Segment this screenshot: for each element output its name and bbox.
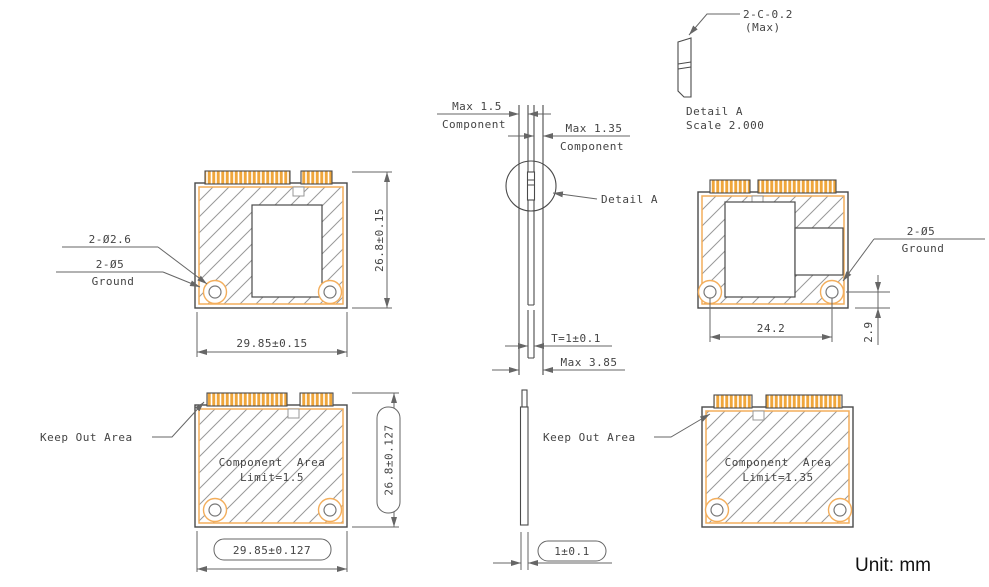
callout-keep-out-right: Keep Out Area (543, 414, 710, 444)
dim-label: 2.9 (862, 321, 875, 342)
extension-lines (197, 312, 347, 357)
callout-label: 2-Ø2.6 (89, 233, 132, 246)
connector-tab-lines (528, 310, 534, 358)
edge-connector-fingers-left (207, 393, 287, 406)
component-limit-text: Limit=1.5 (240, 471, 304, 484)
mounting-hole (209, 286, 221, 298)
component-outline-large (725, 202, 795, 297)
dim-max-total-thickness: Max 3.85 (492, 356, 625, 370)
edge-connector-fingers-left (710, 180, 750, 193)
chamfer-max-label: (Max) (745, 21, 781, 34)
dim-label: Component (442, 118, 506, 131)
callout-label: 2-Ø5 (907, 225, 936, 238)
callout-label: Detail A (601, 193, 658, 206)
component-envelope-lines (519, 105, 543, 375)
key-notch (753, 411, 764, 420)
edge-connector-fingers-right (758, 180, 836, 193)
component-outline-small (795, 228, 843, 275)
mounting-hole (324, 504, 336, 516)
component-area-text: Component Area (219, 456, 326, 469)
callout-keep-out-left: Keep Out Area (40, 402, 204, 444)
dim-label: 24.2 (757, 322, 786, 335)
dim-label: T=1±0.1 (551, 332, 601, 345)
detail-edge-piece (528, 172, 535, 200)
dim-label: 1±0.1 (554, 545, 590, 558)
edge-connector-fingers-left (714, 395, 752, 408)
connector-tab (522, 390, 527, 407)
dim-label: Max 1.5 (452, 100, 502, 113)
detail-scale: Scale 2.000 (686, 119, 764, 132)
bottom-right-card-view: Component Area Limit=1.35 (702, 395, 853, 527)
callout-label: Keep Out Area (543, 431, 636, 444)
mounting-hole (324, 286, 336, 298)
top-left-card-view (195, 171, 347, 308)
mounting-hole (711, 504, 723, 516)
callout-label: Keep Out Area (40, 431, 133, 444)
detail-title: Detail A (686, 105, 743, 118)
callout-label: Ground (902, 242, 945, 255)
bottom-left-card-view: Component Area Limit=1.5 (195, 393, 347, 527)
top-right-card-view (698, 180, 848, 308)
mounting-hole (826, 286, 838, 298)
extension-lines (521, 532, 528, 570)
dim-bottom-width: 29.85±0.127 (197, 531, 347, 572)
dim-max-component-135: Max 1.35 Component (508, 122, 630, 153)
component-outline (252, 205, 322, 297)
edge-connector-fingers-left (205, 171, 290, 184)
mounting-hole (209, 504, 221, 516)
dim-pcb-thickness: T=1±0.1 (505, 332, 612, 346)
edge-connector-fingers-right (766, 395, 842, 408)
edge-connector-fingers-right (301, 171, 332, 184)
component-area-text: Component Area (725, 456, 832, 469)
dim-hole-edge-offset: 2.9 (846, 275, 890, 345)
dimension-drawing-canvas: 26.8±0.15 29.85±0.15 2-Ø2.6 2-Ø5 Ground … (0, 0, 989, 587)
dim-label: Max 3.85 (561, 356, 618, 369)
leader-arrow (553, 193, 597, 199)
dim-bottom-height: 26.8±0.127 (352, 393, 400, 527)
component-limit-text: Limit=1.35 (742, 471, 813, 484)
dim-label: 26.8±0.15 (373, 208, 386, 272)
dim-top-height: 26.8±0.15 (352, 172, 392, 308)
dim-label: 26.8±0.127 (383, 424, 396, 495)
dim-label: Component (560, 140, 624, 153)
side-view-upper (506, 105, 556, 375)
mounting-hole (704, 286, 716, 298)
callout-label: 2-Ø5 (96, 258, 125, 271)
key-notch (288, 409, 299, 418)
pcb-face-lines (528, 105, 534, 305)
extension-lines (846, 292, 890, 308)
callout-label: Ground (92, 275, 135, 288)
detail-a-view: 2-C-0.2 (Max) Detail A Scale 2.000 (678, 8, 793, 132)
key-notch (293, 187, 304, 196)
callout-hole-small: 2-Ø2.6 (62, 233, 207, 284)
side-view-lower: 1±0.1 (493, 390, 612, 570)
dim-label: Max 1.35 (566, 122, 623, 135)
callout-detail-a: Detail A (553, 193, 658, 206)
unit-label: Unit: mm (855, 555, 931, 576)
dim-label: 29.85±0.15 (236, 337, 307, 350)
pcb-strip (521, 407, 529, 525)
technical-drawing-page: 26.8±0.15 29.85±0.15 2-Ø2.6 2-Ø5 Ground … (0, 0, 989, 587)
chamfer-label: 2-C-0.2 (743, 8, 793, 21)
callout-hole-ground-right: 2-Ø5 Ground (843, 225, 985, 281)
extension-lines (352, 172, 392, 308)
edge-connector-fingers-right (300, 393, 333, 406)
mounting-hole (834, 504, 846, 516)
dim-top-width: 29.85±0.15 (197, 312, 347, 357)
leader-arrow (689, 14, 740, 35)
dim-label: 29.85±0.127 (233, 544, 311, 557)
